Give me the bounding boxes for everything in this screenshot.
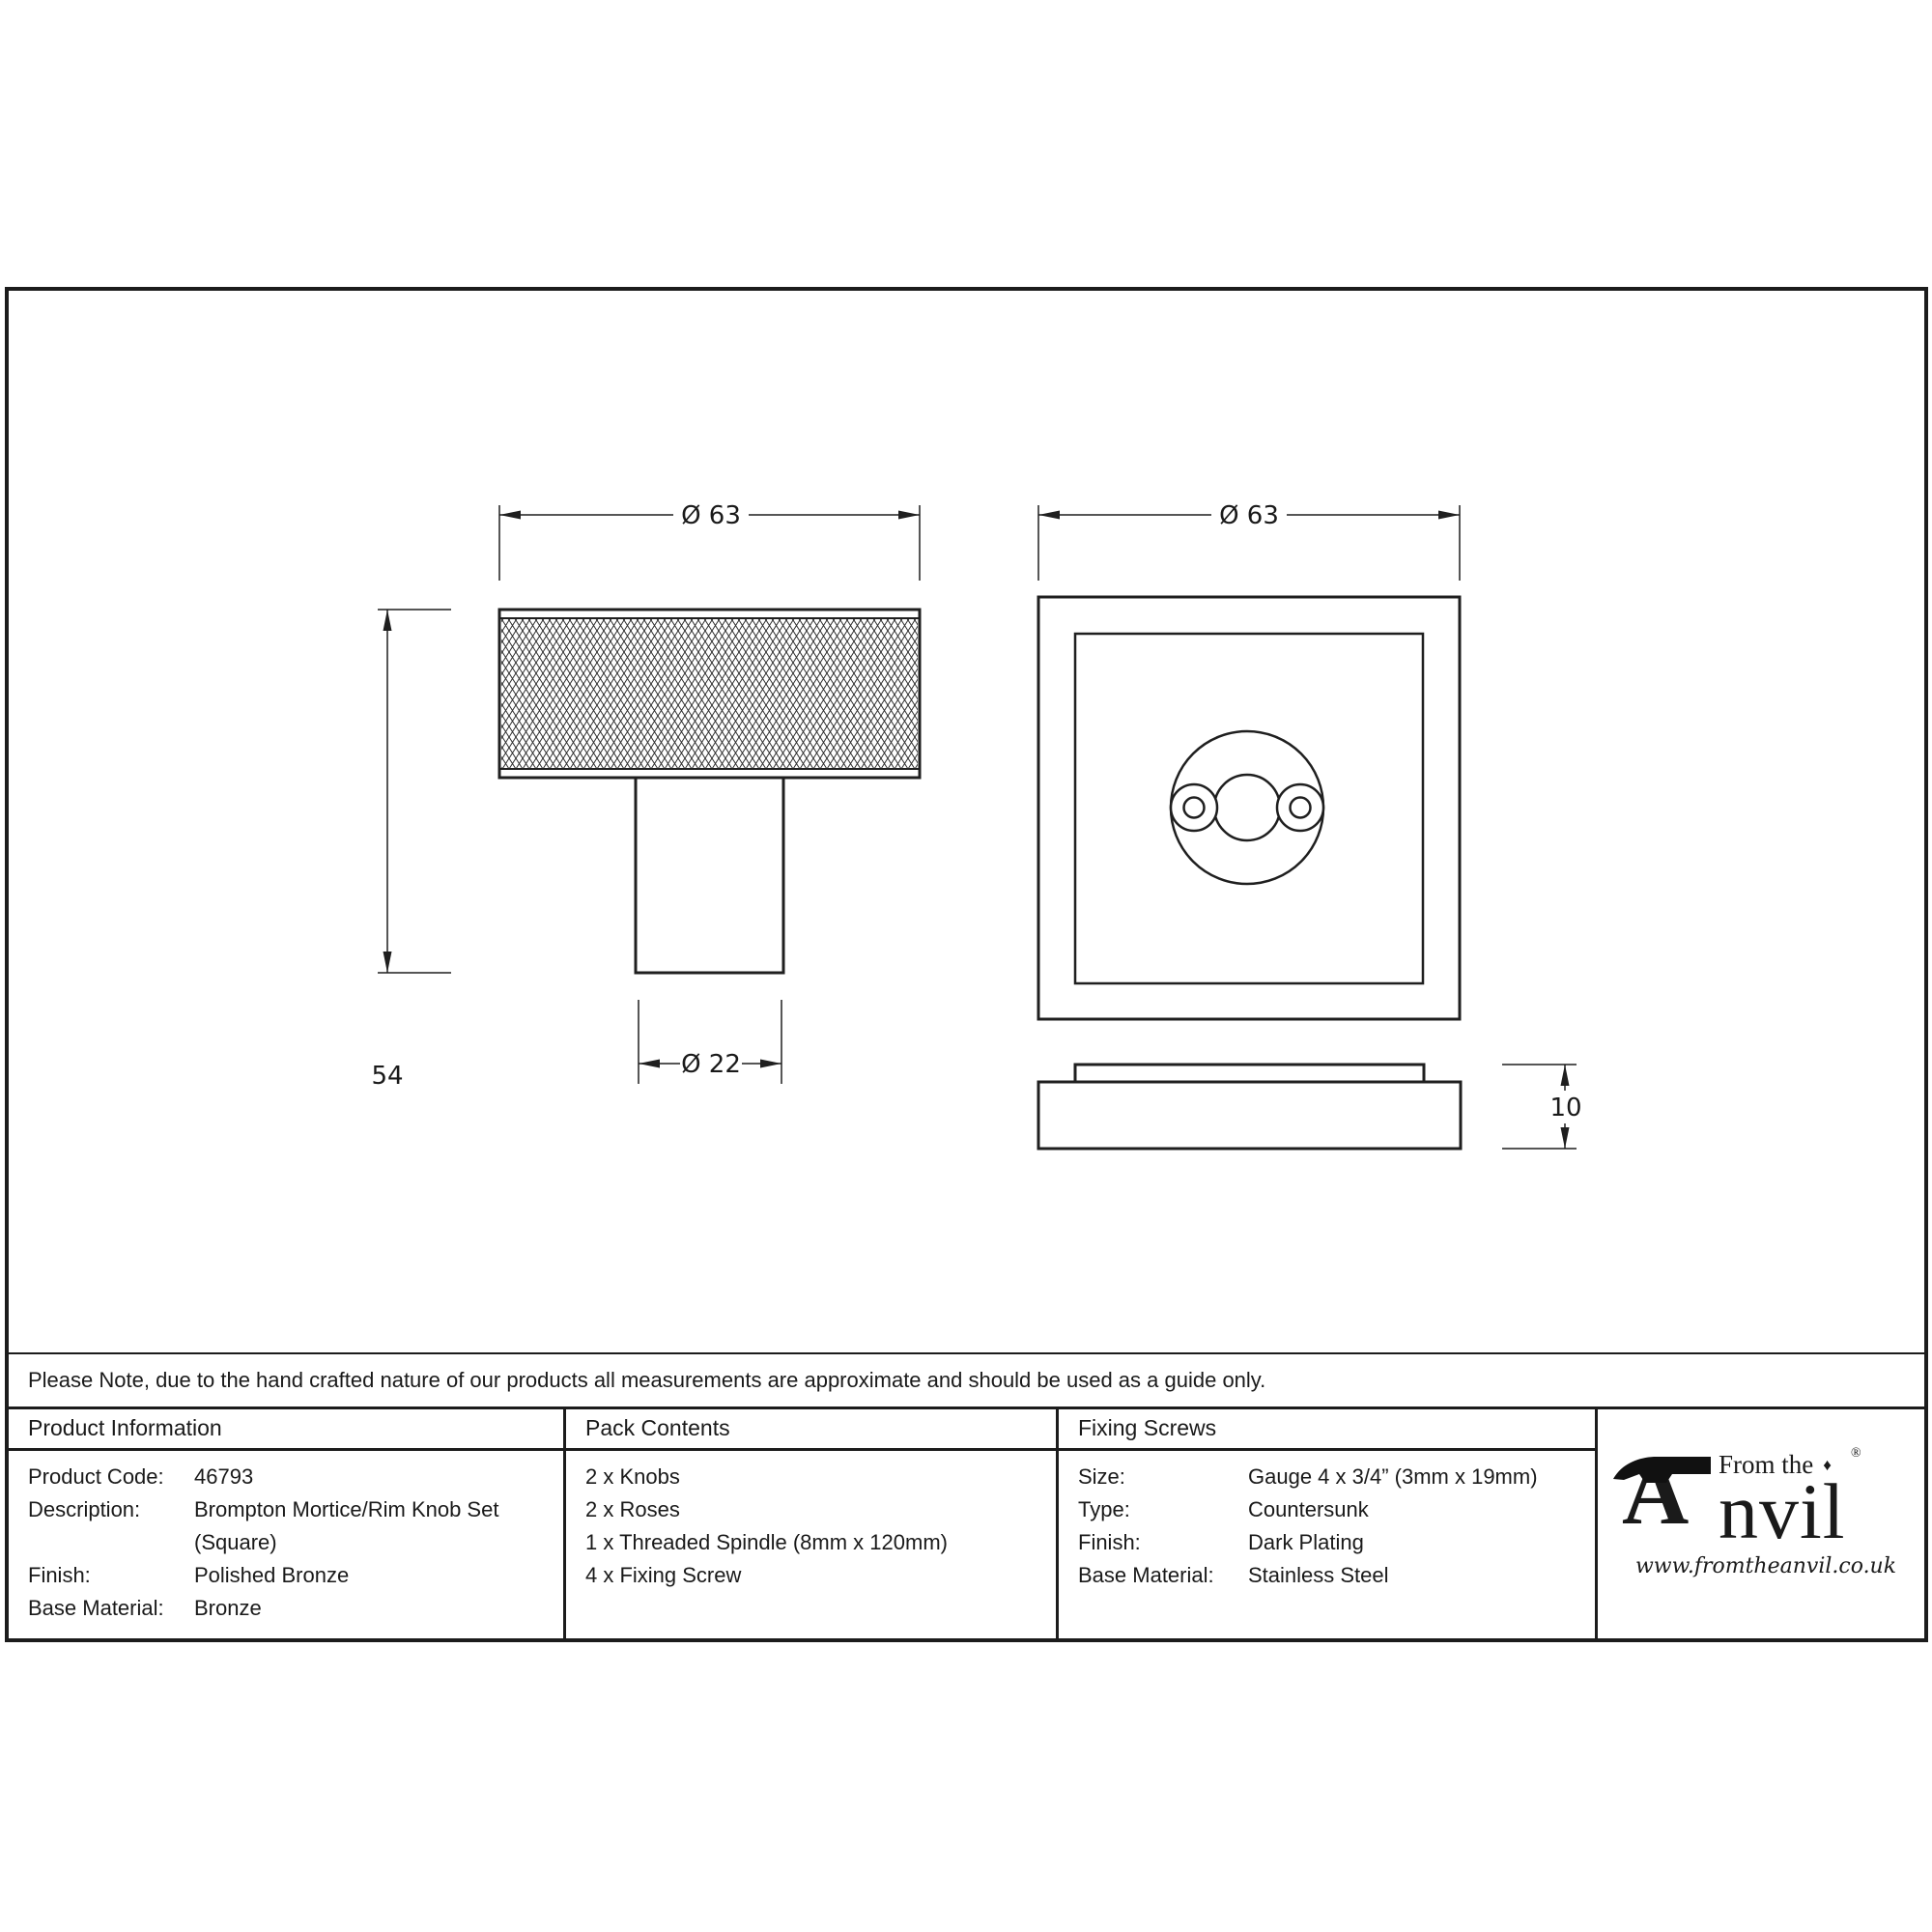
- brand-logo-cell: A From the ♦ nvil ®: [1598, 1409, 1924, 1638]
- measurement-note-text: Please Note, due to the hand crafted nat…: [28, 1368, 1265, 1393]
- arrowhead-up-icon: [1561, 1065, 1570, 1086]
- arrowhead-left-icon: [499, 511, 521, 520]
- arrowhead-down-icon: [384, 952, 392, 973]
- table-row: Size: Gauge 4 x 3/4” (3mm x 19mm): [1078, 1461, 1585, 1493]
- rose-profile-top-plate: [1075, 1065, 1424, 1082]
- fixing-screws-header: Fixing Screws: [1059, 1409, 1595, 1451]
- spec-value: Polished Bronze: [194, 1559, 349, 1592]
- spec-sheet-page: Ø 63: [0, 0, 1932, 1932]
- table-row: Description: Brompton Mortice/Rim Knob S…: [28, 1493, 554, 1559]
- measurement-note-bar: Please Note, due to the hand crafted nat…: [9, 1352, 1924, 1409]
- fixing-screws-column: Fixing Screws Size: Gauge 4 x 3/4” (3mm …: [1059, 1409, 1598, 1638]
- product-info-table: Product Information Product Code: 46793 …: [9, 1409, 1924, 1638]
- spec-value: Countersunk: [1248, 1493, 1369, 1526]
- spec-label: Product Code:: [28, 1461, 194, 1493]
- spec-value: Gauge 4 x 3/4” (3mm x 19mm): [1248, 1461, 1538, 1493]
- spec-label: Description:: [28, 1493, 194, 1559]
- arrowhead-right-icon: [898, 511, 920, 520]
- arrowhead-left-icon: [639, 1060, 660, 1068]
- dim-rose-thickness-label: 10: [1549, 1094, 1581, 1122]
- knurl-texture: [501, 619, 918, 768]
- arrowhead-up-icon: [384, 610, 392, 631]
- table-row: Base Material: Bronze: [28, 1592, 554, 1625]
- arrowhead-right-icon: [1438, 511, 1460, 520]
- anvil-icon: [1612, 1454, 1713, 1483]
- list-item: 2 x Roses: [585, 1493, 1046, 1526]
- rose-profile-base-plate: [1038, 1082, 1461, 1149]
- from-the-anvil-logo: A From the ♦ nvil ®: [1616, 1446, 1906, 1601]
- product-information-column: Product Information Product Code: 46793 …: [9, 1409, 566, 1638]
- logo-row: A From the ♦ nvil ®: [1616, 1446, 1846, 1547]
- spec-label: Finish:: [28, 1559, 194, 1592]
- spec-value: Brompton Mortice/Rim Knob Set (Square): [194, 1493, 498, 1559]
- brand-rest: nvil: [1719, 1480, 1846, 1544]
- arrowhead-left-icon: [1038, 511, 1060, 520]
- knob-stem: [636, 778, 783, 973]
- pack-contents-body: 2 x Knobs 2 x Roses 1 x Threaded Spindle…: [566, 1451, 1056, 1638]
- spec-value: 46793: [194, 1461, 253, 1493]
- brand-website: www.fromtheanvil.co.uk: [1626, 1554, 1906, 1578]
- spec-label: Size:: [1078, 1461, 1248, 1493]
- screw-hole-right-inner: [1291, 798, 1311, 818]
- spec-label: Base Material:: [28, 1592, 194, 1625]
- spindle-hole: [1214, 775, 1280, 840]
- spec-sheet-frame: Ø 63: [5, 287, 1928, 1642]
- technical-drawing-svg: Ø 63: [9, 291, 1924, 1352]
- dim-knob-height: [378, 610, 451, 973]
- table-row: Finish: Polished Bronze: [28, 1559, 554, 1592]
- product-information-body: Product Code: 46793 Description: Brompto…: [9, 1451, 563, 1638]
- list-item: 4 x Fixing Screw: [585, 1559, 1046, 1592]
- logo-wordmark: From the ♦ nvil ®: [1719, 1446, 1846, 1544]
- spec-value: Dark Plating: [1248, 1526, 1364, 1559]
- spec-value: Stainless Steel: [1248, 1559, 1389, 1592]
- list-item: 1 x Threaded Spindle (8mm x 120mm): [585, 1526, 1046, 1559]
- technical-drawing-area: Ø 63: [9, 291, 1924, 1352]
- table-row: Type: Countersunk: [1078, 1493, 1585, 1526]
- dim-rose-width-label: Ø 63: [1219, 501, 1279, 530]
- list-item: 2 x Knobs: [585, 1461, 1046, 1493]
- logo-letter-a: A: [1616, 1446, 1720, 1547]
- screw-hole-left-inner: [1184, 798, 1205, 818]
- knob-side-view: Ø 63: [366, 499, 920, 1094]
- pack-contents-column: Pack Contents 2 x Knobs 2 x Roses 1 x Th…: [566, 1409, 1059, 1638]
- fixing-screws-body: Size: Gauge 4 x 3/4” (3mm x 19mm) Type: …: [1059, 1451, 1595, 1638]
- pack-contents-header: Pack Contents: [566, 1409, 1056, 1451]
- arrowhead-down-icon: [1561, 1127, 1570, 1149]
- spec-label: Base Material:: [1078, 1559, 1248, 1592]
- product-information-header: Product Information: [9, 1409, 563, 1451]
- arrowhead-right-icon: [760, 1060, 781, 1068]
- table-row: Product Code: 46793: [28, 1461, 554, 1493]
- dim-knob-diameter-label: Ø 63: [681, 501, 741, 530]
- spec-value: Bronze: [194, 1592, 262, 1625]
- dim-stem-diameter-label: Ø 22: [681, 1050, 741, 1079]
- registered-trademark-icon: ®: [1851, 1446, 1861, 1462]
- spec-label: Type:: [1078, 1493, 1248, 1526]
- dim-knob-height-label: 54: [371, 1062, 403, 1091]
- table-row: Finish: Dark Plating: [1078, 1526, 1585, 1559]
- table-row: Base Material: Stainless Steel: [1078, 1559, 1585, 1592]
- spec-label: Finish:: [1078, 1526, 1248, 1559]
- rose-front-view: Ø 63: [1038, 499, 1584, 1149]
